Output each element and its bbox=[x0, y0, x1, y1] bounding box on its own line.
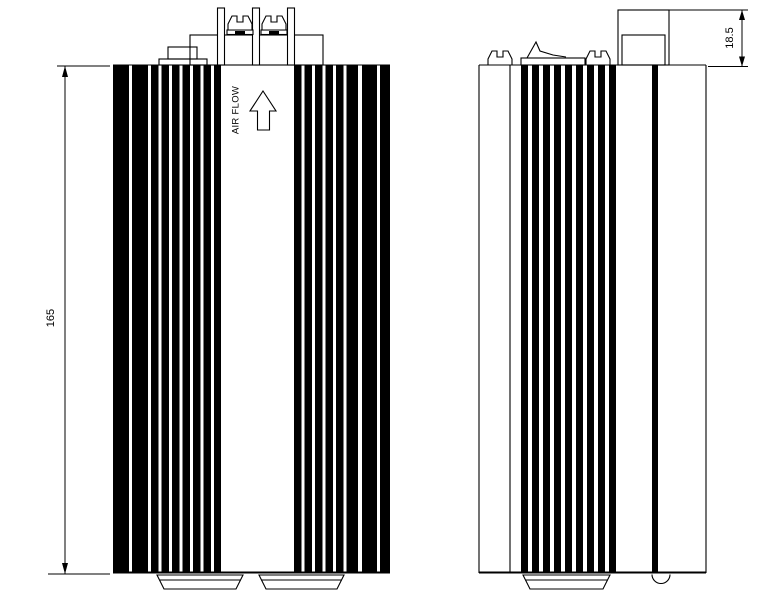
arrowhead-down-icon bbox=[62, 563, 68, 574]
air-flow-label: AIR FLOW bbox=[231, 86, 242, 134]
arrowhead-up-icon bbox=[62, 66, 68, 77]
dimension-terminal-height: 18.5 bbox=[669, 10, 748, 67]
drawing: AIR FLOW bbox=[0, 0, 773, 598]
technical-drawing-canvas: AIR FLOW bbox=[0, 0, 773, 598]
side-view bbox=[479, 10, 706, 589]
terminal-post bbox=[288, 8, 295, 65]
side-fins bbox=[521, 65, 658, 573]
air-flow-arrow-icon bbox=[250, 91, 276, 130]
side-top-hardware bbox=[488, 10, 669, 65]
arrowhead-up-icon bbox=[739, 10, 745, 20]
mounting-bracket bbox=[159, 47, 207, 65]
slotted-screw-head-icon bbox=[262, 16, 286, 30]
dimension-overall-height: 165 bbox=[45, 66, 110, 574]
arrowhead-down-icon bbox=[739, 57, 745, 67]
terminal-post bbox=[253, 8, 260, 65]
terminal-block bbox=[190, 8, 323, 65]
terminal-screw bbox=[261, 16, 287, 35]
slotted-screw-head-icon bbox=[586, 51, 610, 65]
dimension-label-165: 165 bbox=[45, 309, 57, 327]
front-view: AIR FLOW bbox=[113, 8, 390, 589]
connector-housing-outer bbox=[618, 10, 669, 65]
slotted-screw-head-icon bbox=[228, 16, 252, 30]
front-feet bbox=[157, 575, 344, 589]
terminal-post bbox=[218, 8, 225, 65]
side-foot bbox=[523, 575, 610, 589]
connector-housing bbox=[618, 10, 669, 65]
screw-shank bbox=[269, 31, 279, 35]
air-flow-annotation: AIR FLOW bbox=[231, 86, 276, 134]
bracket-base bbox=[159, 59, 207, 65]
slotted-screw-head-icon bbox=[488, 51, 512, 65]
front-fins bbox=[113, 65, 390, 573]
side-slot-line bbox=[652, 65, 658, 573]
connector-housing-inner bbox=[622, 35, 665, 65]
terminal-screw bbox=[227, 16, 253, 35]
dimension-label-18-5: 18.5 bbox=[724, 27, 736, 48]
side-feet bbox=[523, 575, 670, 590]
side-pin bbox=[652, 575, 670, 584]
front-foot bbox=[259, 575, 344, 589]
clamp-plate bbox=[521, 58, 585, 65]
bracket-step bbox=[168, 47, 197, 59]
spring-clip bbox=[527, 42, 566, 58]
screw-shank bbox=[235, 31, 245, 35]
front-foot bbox=[157, 575, 243, 589]
